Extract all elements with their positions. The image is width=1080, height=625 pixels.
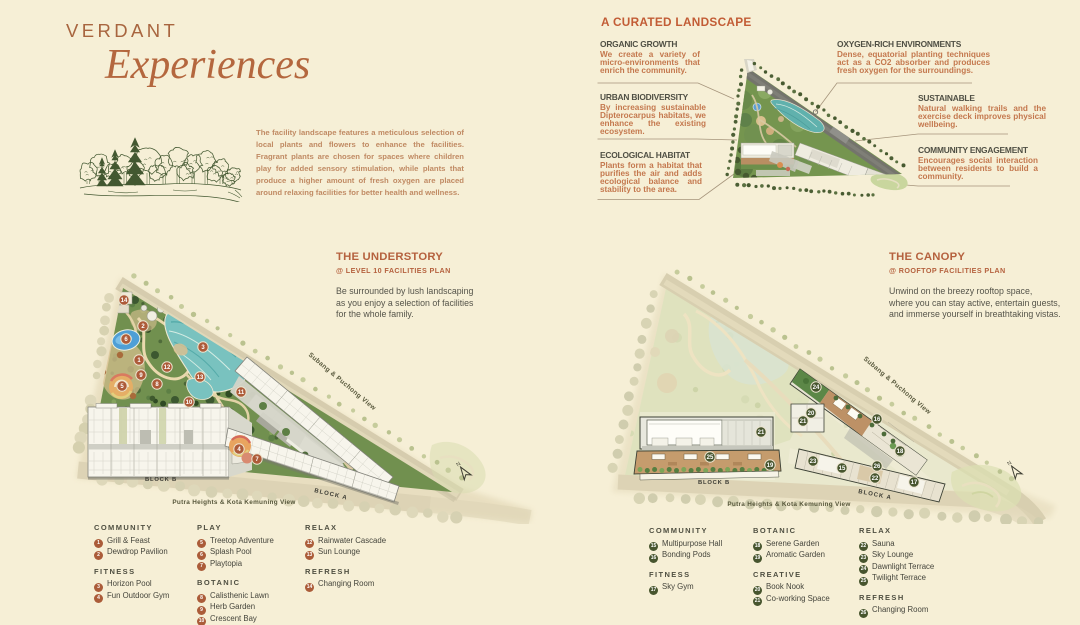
svg-text:14: 14	[121, 298, 128, 304]
svg-text:25: 25	[707, 455, 714, 461]
svg-text:15: 15	[839, 466, 846, 472]
svg-text:10: 10	[186, 400, 193, 406]
svg-text:24: 24	[813, 385, 820, 391]
svg-text:22: 22	[872, 476, 879, 482]
svg-text:21: 21	[758, 430, 765, 436]
svg-text:Putra Heights & Kota Kemuning: Putra Heights & Kota Kemuning View	[727, 501, 850, 508]
svg-text:20: 20	[808, 411, 815, 417]
svg-text:12: 12	[164, 365, 171, 371]
svg-text:13: 13	[197, 375, 204, 381]
svg-text:19: 19	[767, 463, 774, 469]
svg-text:21: 21	[800, 419, 807, 425]
svg-text:16: 16	[874, 417, 881, 423]
svg-text:23: 23	[810, 459, 817, 465]
svg-text:26: 26	[874, 464, 881, 470]
svg-text:18: 18	[897, 449, 904, 455]
svg-text:11: 11	[238, 390, 245, 396]
svg-text:BLOCK B: BLOCK B	[145, 477, 177, 483]
svg-text:Putra Heights & Kota Kemuning: Putra Heights & Kota Kemuning View	[172, 499, 295, 506]
svg-text:17: 17	[911, 480, 918, 486]
svg-text:BLOCK B: BLOCK B	[698, 480, 730, 486]
